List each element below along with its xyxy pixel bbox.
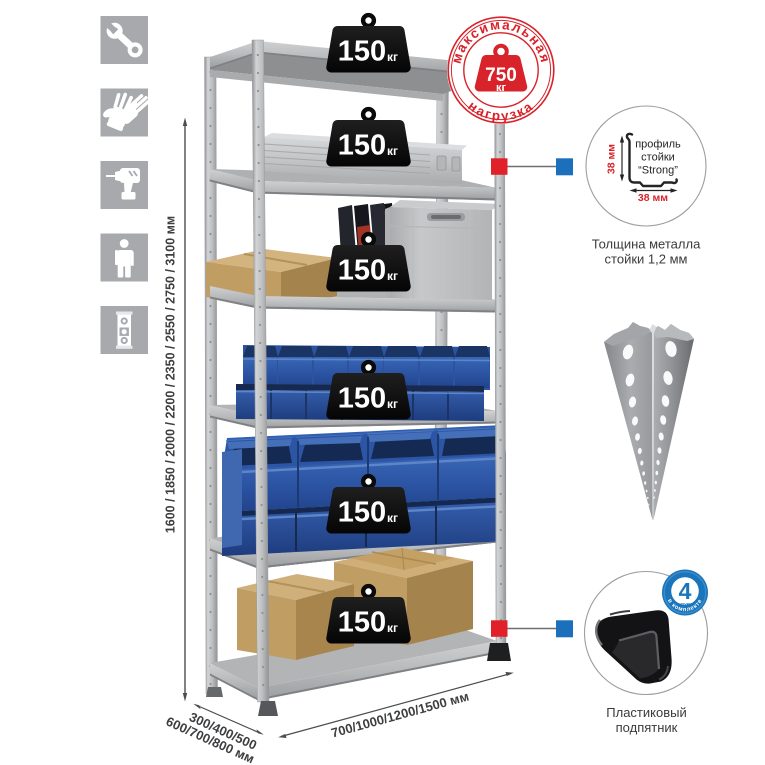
svg-text:150: 150 — [338, 255, 386, 287]
svg-text:38 мм: 38 мм — [638, 192, 668, 204]
svg-text:4: 4 — [679, 578, 692, 604]
svg-text:150: 150 — [338, 607, 386, 639]
svg-text:1600 / 1850 / 2000 / 2200 / 23: 1600 / 1850 / 2000 / 2200 / 2350 / 2550 … — [164, 216, 178, 533]
svg-text:150: 150 — [338, 497, 386, 529]
svg-text:38 мм: 38 мм — [606, 144, 618, 174]
svg-text:150: 150 — [338, 36, 386, 68]
svg-text:150: 150 — [338, 383, 386, 415]
svg-text:“Strong”: “Strong” — [638, 165, 678, 177]
svg-text:кг: кг — [496, 82, 507, 94]
svg-text:кг: кг — [387, 397, 398, 411]
svg-text:кг: кг — [387, 621, 398, 635]
svg-text:стойки 1,2 мм: стойки 1,2 мм — [605, 252, 688, 267]
svg-text:кг: кг — [387, 511, 398, 525]
svg-text:Пластиковый: Пластиковый — [606, 705, 686, 720]
svg-text:кг: кг — [387, 269, 398, 283]
svg-text:Толщина металла: Толщина металла — [592, 237, 701, 252]
svg-text:штуки: штуки — [678, 602, 692, 607]
svg-text:150: 150 — [338, 130, 386, 162]
svg-text:подпятник: подпятник — [616, 720, 678, 735]
svg-text:кг: кг — [387, 144, 398, 158]
svg-text:стойки: стойки — [641, 152, 675, 164]
svg-text:профиль: профиль — [635, 139, 681, 151]
svg-text:кг: кг — [387, 50, 398, 64]
